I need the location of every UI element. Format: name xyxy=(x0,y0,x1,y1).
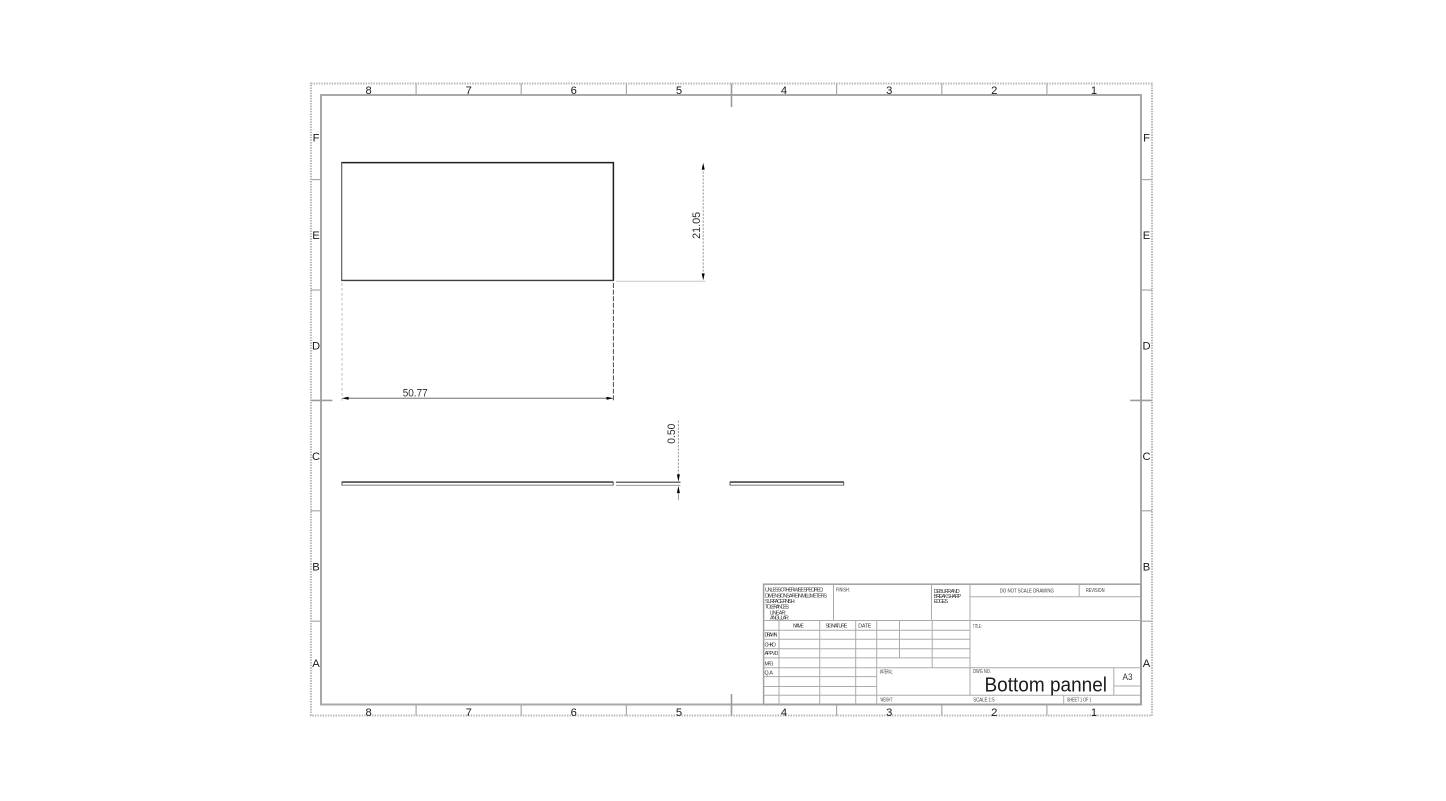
svg-text:7: 7 xyxy=(466,85,472,97)
svg-text:WEIGHT:: WEIGHT: xyxy=(881,698,893,704)
svg-text:APPV'D: APPV'D xyxy=(765,651,779,657)
svg-text:B: B xyxy=(1143,561,1150,573)
svg-text:TITLE:: TITLE: xyxy=(973,624,982,630)
svg-text:5: 5 xyxy=(676,85,682,97)
svg-text:D: D xyxy=(312,341,320,353)
svg-text:2: 2 xyxy=(991,707,997,719)
svg-text:Bottom pannel: Bottom pannel xyxy=(985,674,1108,697)
svg-text:50.77: 50.77 xyxy=(403,387,428,399)
svg-text:E: E xyxy=(312,230,319,242)
svg-text:MFG: MFG xyxy=(765,661,774,667)
svg-text:DATE: DATE xyxy=(858,624,871,630)
svg-text:1: 1 xyxy=(1091,707,1097,719)
svg-text:SHEET 1 OF 1: SHEET 1 OF 1 xyxy=(1067,698,1092,704)
svg-text:0.50: 0.50 xyxy=(666,424,678,444)
svg-text:F: F xyxy=(1143,133,1150,145)
svg-text:6: 6 xyxy=(571,707,577,719)
svg-text:1: 1 xyxy=(1091,85,1097,97)
svg-text:A: A xyxy=(312,658,320,670)
svg-text:21.05: 21.05 xyxy=(691,212,703,239)
svg-text:C: C xyxy=(1142,451,1150,463)
svg-text:5: 5 xyxy=(676,707,682,719)
svg-text:E: E xyxy=(1143,230,1150,242)
svg-text:7: 7 xyxy=(466,707,472,719)
svg-text:4: 4 xyxy=(781,707,787,719)
svg-text:NAME: NAME xyxy=(793,624,804,630)
svg-text:8: 8 xyxy=(365,707,371,719)
svg-text:3: 3 xyxy=(886,85,892,97)
svg-text:A3: A3 xyxy=(1123,672,1133,682)
svg-text:DRAWN: DRAWN xyxy=(765,633,778,639)
svg-text:C: C xyxy=(312,451,320,463)
svg-text:REVISION: REVISION xyxy=(1086,588,1105,594)
svg-text:8: 8 xyxy=(365,85,371,97)
svg-text:SIGNATURE: SIGNATURE xyxy=(825,624,847,630)
svg-text:ANGULAR:: ANGULAR: xyxy=(770,615,789,621)
svg-text:CHK'D: CHK'D xyxy=(765,643,777,649)
svg-text:FINISH:: FINISH: xyxy=(836,587,850,593)
svg-text:EDGES: EDGES xyxy=(934,599,949,605)
svg-text:Q.A: Q.A xyxy=(765,670,774,676)
svg-text:4: 4 xyxy=(781,85,787,97)
svg-text:6: 6 xyxy=(571,85,577,97)
svg-text:A: A xyxy=(1143,658,1151,670)
svg-text:MATERIAL:: MATERIAL: xyxy=(880,670,893,676)
svg-text:3: 3 xyxy=(886,707,892,719)
svg-text:F: F xyxy=(313,133,320,145)
svg-text:SCALE:1:5: SCALE:1:5 xyxy=(973,698,995,704)
svg-text:DO NOT SCALE DRAWING: DO NOT SCALE DRAWING xyxy=(1000,588,1054,594)
svg-text:2: 2 xyxy=(991,85,997,97)
svg-text:D: D xyxy=(1142,341,1150,353)
svg-text:B: B xyxy=(312,561,319,573)
